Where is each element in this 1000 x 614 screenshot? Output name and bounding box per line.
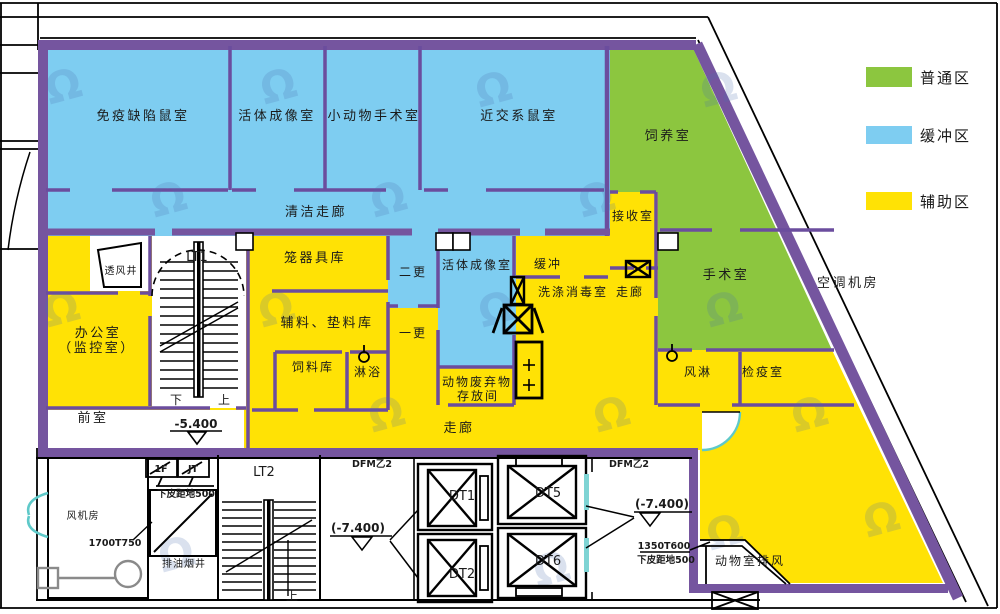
room-front-room: 前室 xyxy=(77,410,108,426)
ann-duct-1350: 1350T600 xyxy=(638,541,691,552)
room-feed-storage: 饲料库 xyxy=(292,359,334,374)
label-lt2: LT2 xyxy=(253,465,275,480)
room-cage-storage: 笼器具库 xyxy=(284,250,346,266)
legend: 普通区 缓冲区 辅助区 xyxy=(866,67,971,211)
room-animal-waste-2: 存放间 xyxy=(457,388,499,403)
label-lt1: LT1 xyxy=(186,250,208,265)
room-air-shower: 风淋 xyxy=(684,365,712,379)
label-dt5: DT5 xyxy=(535,486,561,501)
label-dt2: DT2 xyxy=(449,567,475,582)
legend-label-buffer: 缓冲区 xyxy=(920,127,971,145)
room-smoke-exhaust: 排油烟井 xyxy=(162,557,206,570)
vent-shaft-symbol xyxy=(98,243,141,287)
room-second-change: 二更 xyxy=(399,265,427,279)
room-shower: 淋浴 xyxy=(354,365,382,379)
legend-swatch-buffer xyxy=(866,126,912,144)
room-immune-mouse: 免疫缺陷鼠室 xyxy=(96,108,189,124)
room-aux-bedding-storage: 辅料、垫料库 xyxy=(280,315,373,331)
ann-dfm-left: DFM乙2 xyxy=(352,459,392,470)
legend-label-auxiliary: 辅助区 xyxy=(920,193,971,211)
room-buffer: 缓冲 xyxy=(534,256,562,271)
label-down: 下 xyxy=(170,393,184,407)
room-quarantine: 检疫室 xyxy=(742,364,784,379)
floor-plan-canvas: ΩΩΩΩΩΩΩΩΩΩΩΩΩΩΩΩΩΩ xyxy=(0,0,1000,614)
ann-floor-1f: 1F xyxy=(154,464,167,475)
ann-level-right: (-7.400) xyxy=(635,497,689,511)
room-first-change: 一更 xyxy=(399,326,427,340)
ann-clearance-right: 下皮距地500 xyxy=(637,554,695,566)
room-animal-waste-1: 动物废弃物 xyxy=(442,374,512,389)
ann-level-left: (-7.400) xyxy=(331,521,385,535)
room-office-2: （监控室） xyxy=(58,340,136,356)
room-fan-room: 风机房 xyxy=(67,509,100,522)
ann-jt: JT xyxy=(187,464,199,475)
legend-swatch-general xyxy=(866,67,912,87)
room-office-1: 办公室 xyxy=(75,325,122,341)
room-imaging-mid: 活体成像室 xyxy=(442,257,512,272)
room-inbred-mouse: 近交系鼠室 xyxy=(480,108,558,124)
room-surgery: 手术室 xyxy=(703,267,750,283)
ann-dfm-right: DFM乙2 xyxy=(609,459,649,470)
label-dt1: DT1 xyxy=(449,489,475,504)
room-ahu: 空调机房 xyxy=(817,275,879,291)
room-small-animal-surgery: 小动物手术室 xyxy=(327,108,420,124)
label-up2: 上 xyxy=(286,589,300,603)
legend-swatch-auxiliary xyxy=(866,192,912,210)
legend-label-general: 普通区 xyxy=(920,69,971,87)
label-up: 上 xyxy=(218,393,232,407)
ann-clearance-left: 下皮距地500 xyxy=(157,488,215,500)
floor-plan-drawing: ΩΩΩΩΩΩΩΩΩΩΩΩΩΩΩΩΩΩ xyxy=(0,0,1000,614)
ann-level-main: -5.400 xyxy=(175,417,218,431)
room-breeding: 饲养室 xyxy=(645,128,692,144)
label-dt6: DT6 xyxy=(535,554,561,569)
room-animal-exhaust: 动物室排风 xyxy=(715,553,785,568)
room-corridor-vert: 走廊 xyxy=(616,284,644,299)
room-corridor-horiz: 走廊 xyxy=(443,420,474,436)
ann-duct-1700: 1700T750 xyxy=(89,538,142,549)
room-receiving: 接收室 xyxy=(612,208,654,223)
grey-utilities xyxy=(38,561,141,588)
room-washing-disinfect: 洗涤消毒室 xyxy=(538,284,608,299)
watermark-icon: Ω xyxy=(153,526,200,583)
room-vent-shaft: 透风井 xyxy=(105,264,138,277)
basement-linework xyxy=(36,455,790,609)
room-clean-corridor: 清洁走廊 xyxy=(285,204,347,220)
room-imaging-top: 活体成像室 xyxy=(238,108,316,124)
